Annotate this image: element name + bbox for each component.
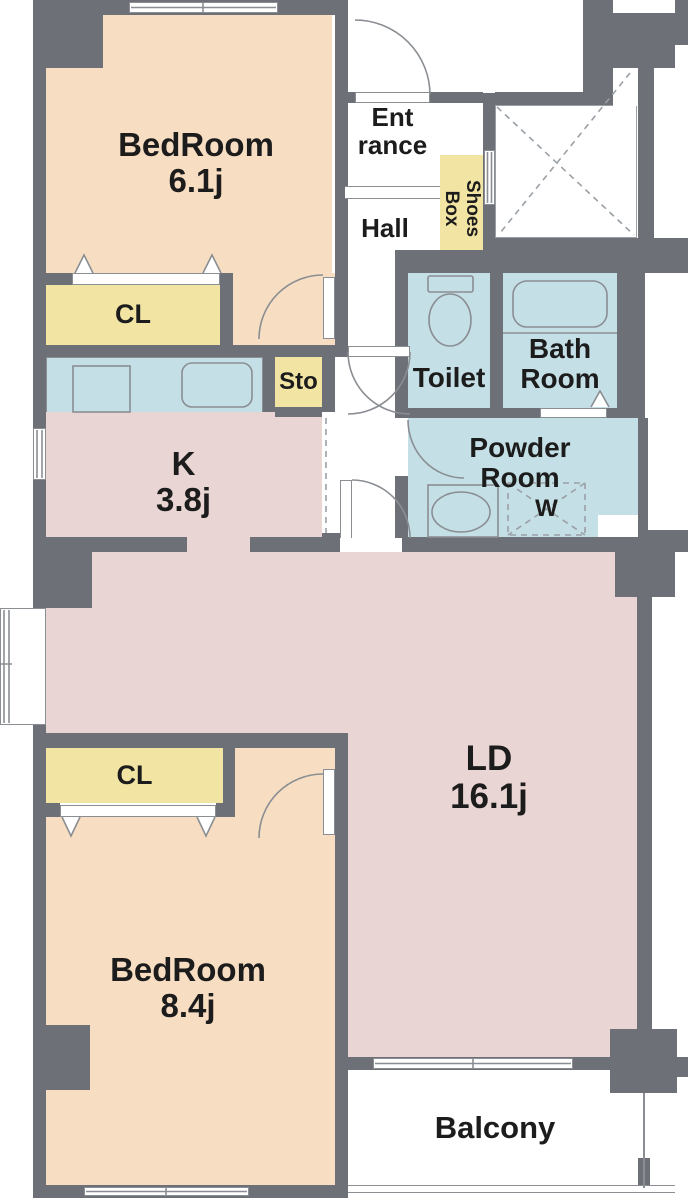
room-name: CL <box>115 300 151 329</box>
room-bedroom-1 <box>233 273 335 345</box>
wall-segment <box>335 748 348 1198</box>
room-name: K <box>172 446 196 482</box>
wall-segment <box>613 13 675 68</box>
closet1-opening <box>72 273 220 285</box>
door-arc-entrance <box>355 20 430 95</box>
label-entrance: Ent rance <box>345 100 440 162</box>
wall-segment <box>395 250 688 273</box>
room-name: Room <box>520 364 599 394</box>
room-area: 3.8j <box>156 482 211 518</box>
wall-segment <box>275 345 322 357</box>
label-closet-2: CL <box>46 748 223 803</box>
wall-segment <box>33 803 60 817</box>
room-name: W <box>535 496 558 522</box>
wall-segment <box>483 238 688 252</box>
room-name: Balcony <box>435 1111 556 1144</box>
wall-segment <box>675 0 688 45</box>
room-bedroom-1 <box>103 15 332 68</box>
wall-segment <box>583 0 613 92</box>
wall-segment <box>637 595 652 1030</box>
window-bay-living <box>0 608 46 725</box>
label-living-dining: LD 16.1j <box>389 736 589 820</box>
label-hall: Hall <box>345 210 425 246</box>
room-name: rance <box>358 131 427 159</box>
room-area: 6.1j <box>168 163 223 199</box>
powder-notch <box>598 515 638 537</box>
wall-segment <box>615 552 675 597</box>
wall-segment <box>250 537 340 552</box>
label-toilet: Toilet <box>404 360 494 396</box>
entrance-step <box>345 186 440 199</box>
floor-plan: BedRoom 6.1j CL Sto Ent rance Hall Shoes… <box>0 0 688 1200</box>
label-balcony: Balcony <box>395 1108 595 1148</box>
window-shoes-box <box>484 150 495 205</box>
wall-segment <box>395 408 645 418</box>
room-name: Hall <box>361 214 409 242</box>
wall-segment <box>33 550 92 608</box>
window-bedroom1 <box>129 2 278 13</box>
wall-segment <box>675 1057 688 1077</box>
wall-pillar <box>610 1029 677 1093</box>
door-leaf-bedroom1 <box>323 277 335 339</box>
window-bedroom2 <box>84 1187 249 1196</box>
wall-segment <box>648 530 688 552</box>
room-name: CL <box>117 761 153 790</box>
wall-segment <box>33 273 72 285</box>
label-bedroom-2: BedRoom 8.4j <box>88 948 288 1028</box>
door-bathroom <box>540 408 607 418</box>
label-washer: W <box>508 483 585 535</box>
void-hatch-box <box>613 70 637 106</box>
label-storage: Sto <box>273 357 324 407</box>
door-opening-powder <box>395 418 408 476</box>
closet2-opening <box>60 805 216 817</box>
room-name: Powder <box>469 433 570 463</box>
wall-segment <box>638 68 654 252</box>
room-name: BedRoom <box>118 127 274 163</box>
wall-segment <box>33 345 275 357</box>
wall-segment <box>402 537 648 552</box>
window-balcony-slider <box>373 1058 573 1069</box>
label-bedroom-1: BedRoom 6.1j <box>96 124 296 202</box>
balcony-rail <box>348 1185 675 1193</box>
wall-segment <box>275 407 322 417</box>
wall-segment <box>495 92 613 105</box>
wall-segment <box>335 0 348 357</box>
wall-pillar <box>33 1025 90 1090</box>
room-name: BedRoom <box>110 952 266 988</box>
room-name: Toilet <box>413 363 486 393</box>
room-name: Ent <box>372 103 414 131</box>
label-kitchen: K 3.8j <box>96 441 271 523</box>
wall-segment <box>216 803 235 817</box>
kitchen-counter <box>46 357 263 413</box>
wall-segment <box>220 273 233 345</box>
label-closet-1: CL <box>46 285 220 345</box>
wall-segment <box>617 273 645 418</box>
door-leaf-living <box>340 480 352 540</box>
door-leaf-bedroom2 <box>323 769 335 835</box>
room-area: 16.1j <box>450 778 528 816</box>
void-hatch-box <box>495 105 637 238</box>
room-name: LD <box>466 740 513 778</box>
wall-segment <box>638 418 648 537</box>
room-bedroom-2 <box>235 748 335 817</box>
wall-segment <box>33 733 348 748</box>
room-name: Bath <box>529 334 591 364</box>
label-bathroom: Bath Room <box>503 328 617 400</box>
balcony-rail-right <box>643 1093 645 1188</box>
room-name: Sto <box>279 369 318 395</box>
label-shoes-box: Shoes Box <box>440 155 483 262</box>
room-name: Shoes Box <box>441 180 482 237</box>
window-kitchen <box>33 428 46 480</box>
room-area: 8.4j <box>160 988 215 1024</box>
door-opening-living <box>340 538 402 552</box>
door-leaf-toilet <box>348 346 410 357</box>
